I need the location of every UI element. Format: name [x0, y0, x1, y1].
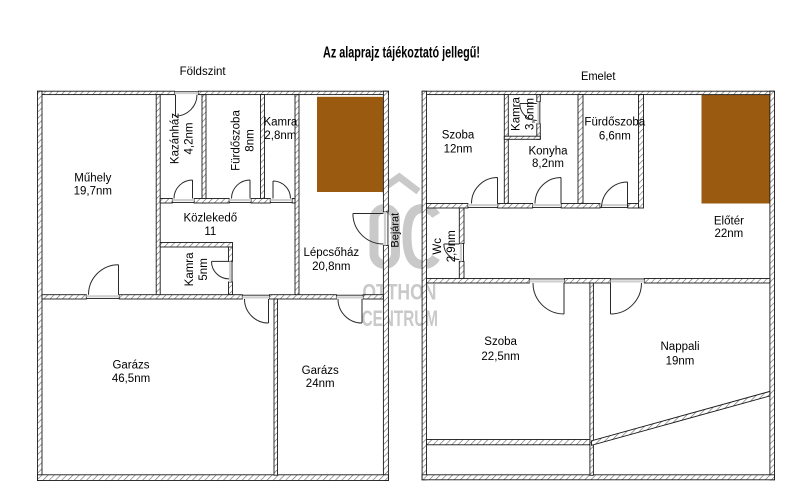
svg-text:12nm: 12nm	[444, 143, 473, 155]
svg-text:Bejárat: Bejárat	[389, 213, 401, 248]
svg-text:2,8nm: 2,8nm	[264, 130, 296, 142]
svg-text:46,5nm: 46,5nm	[112, 373, 150, 385]
svg-text:Garázs: Garázs	[302, 365, 339, 377]
svg-text:11: 11	[204, 226, 216, 238]
svg-text:Emelet: Emelet	[581, 69, 616, 83]
svg-text:Kamra: Kamra	[263, 116, 297, 128]
svg-text:Lépcsőház: Lépcsőház	[303, 247, 359, 259]
svg-text:3,6nm: 3,6nm	[525, 98, 537, 130]
svg-text:Előtér: Előtér	[714, 215, 744, 227]
svg-text:Közlekedő: Közlekedő	[183, 213, 237, 225]
svg-text:Műhely: Műhely	[74, 172, 111, 184]
svg-text:Kazánház: Kazánház	[170, 113, 182, 164]
svg-text:8,2nm: 8,2nm	[532, 158, 564, 170]
svg-text:Szoba: Szoba	[442, 129, 475, 141]
svg-text:8nm: 8nm	[245, 129, 257, 151]
svg-text:22nm: 22nm	[715, 228, 744, 240]
svg-text:Wc: Wc	[432, 238, 444, 255]
svg-text:Nappali: Nappali	[661, 341, 700, 353]
svg-text:Az alaprajz tájékoztató jelleg: Az alaprajz tájékoztató jellegű!	[323, 45, 480, 62]
svg-text:Fürdőszoba: Fürdőszoba	[231, 110, 243, 171]
svg-text:2,9nm: 2,9nm	[446, 230, 458, 262]
svg-text:Kamra: Kamra	[184, 252, 196, 286]
svg-text:19nm: 19nm	[666, 355, 695, 367]
svg-text:24nm: 24nm	[306, 378, 335, 390]
svg-text:19,7nm: 19,7nm	[74, 185, 112, 197]
svg-text:5nm: 5nm	[198, 258, 210, 280]
svg-text:22,5nm: 22,5nm	[481, 351, 519, 363]
svg-text:Fürdőszoba: Fürdőszoba	[584, 117, 645, 129]
svg-text:Szoba: Szoba	[484, 336, 517, 348]
svg-text:Konyha: Konyha	[528, 145, 568, 157]
svg-text:Kamra: Kamra	[511, 96, 523, 130]
svg-text:Garázs: Garázs	[112, 360, 149, 372]
svg-text:6,6nm: 6,6nm	[599, 130, 631, 142]
svg-text:20,8nm: 20,8nm	[312, 261, 350, 273]
svg-text:4,2nm: 4,2nm	[184, 123, 196, 155]
svg-text:Földszint: Földszint	[180, 64, 227, 78]
